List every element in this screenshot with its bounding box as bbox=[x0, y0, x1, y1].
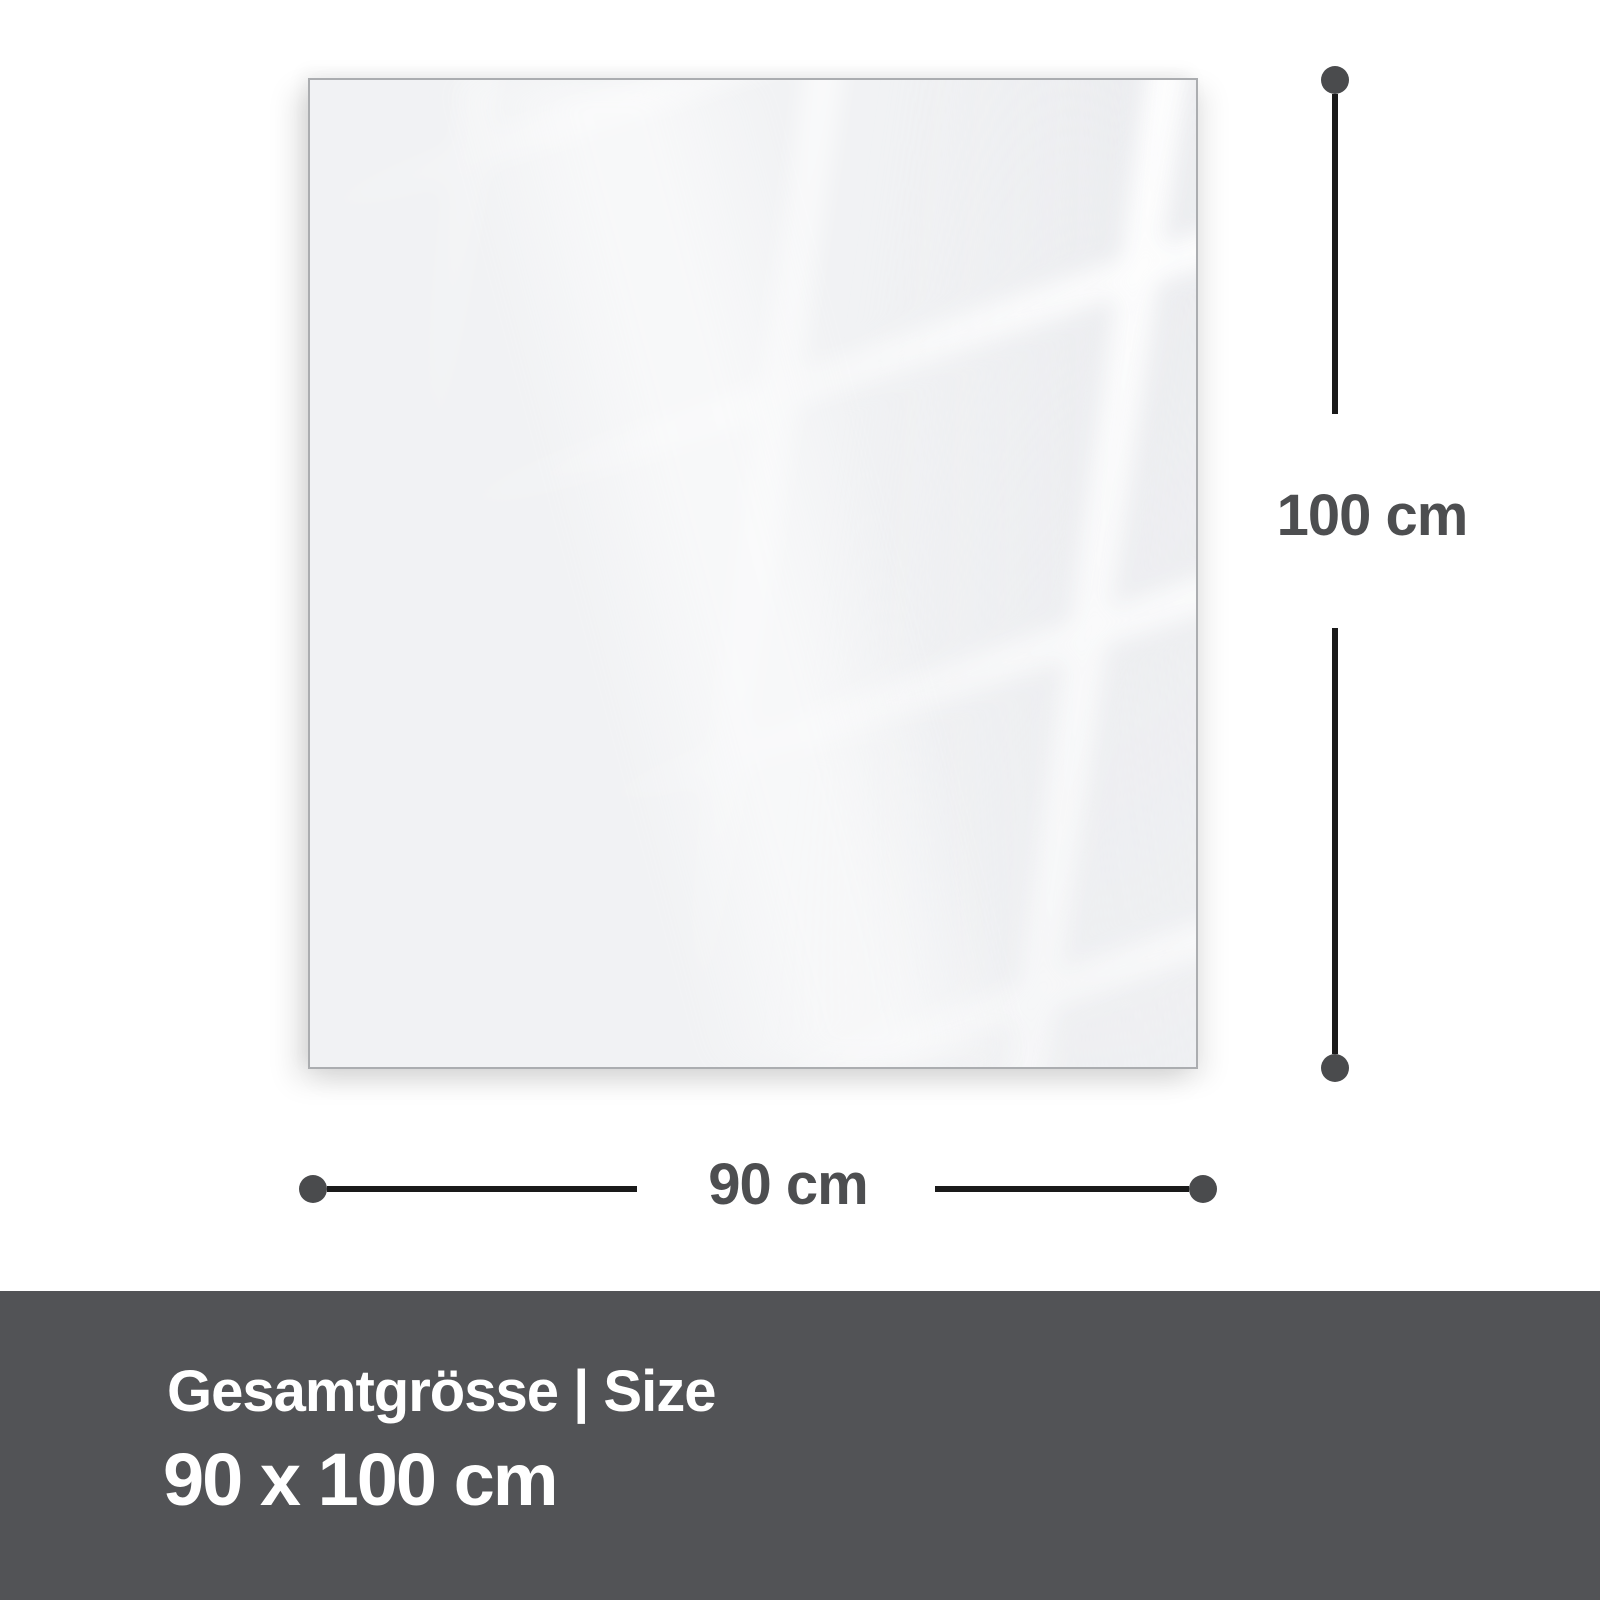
size-footer-bar: Gesamtgrösse | Size 90 x 100 cm bbox=[0, 1291, 1600, 1600]
product-size-diagram: 100 cm 90 cm Gesamtgrösse | Size 90 x 10… bbox=[0, 0, 1600, 1600]
height-dimension-line-upper bbox=[1332, 94, 1338, 414]
height-dimension-line-lower bbox=[1332, 628, 1338, 1054]
height-dimension-label: 100 cm bbox=[1277, 487, 1468, 545]
size-value: 90 x 100 cm bbox=[163, 1443, 557, 1517]
size-caption: Gesamtgrösse | Size bbox=[167, 1363, 715, 1421]
height-dimension-top-dot bbox=[1321, 66, 1349, 94]
height-dimension-bottom-dot bbox=[1321, 1054, 1349, 1082]
width-dimension-line-left bbox=[327, 1186, 637, 1192]
glass-panel bbox=[308, 78, 1198, 1069]
width-dimension-right-dot bbox=[1189, 1175, 1217, 1203]
width-dimension-label: 90 cm bbox=[708, 1156, 867, 1214]
width-dimension-line-right bbox=[935, 1186, 1189, 1192]
width-dimension-left-dot bbox=[299, 1175, 327, 1203]
glass-reflection-band bbox=[310, 80, 1196, 1067]
